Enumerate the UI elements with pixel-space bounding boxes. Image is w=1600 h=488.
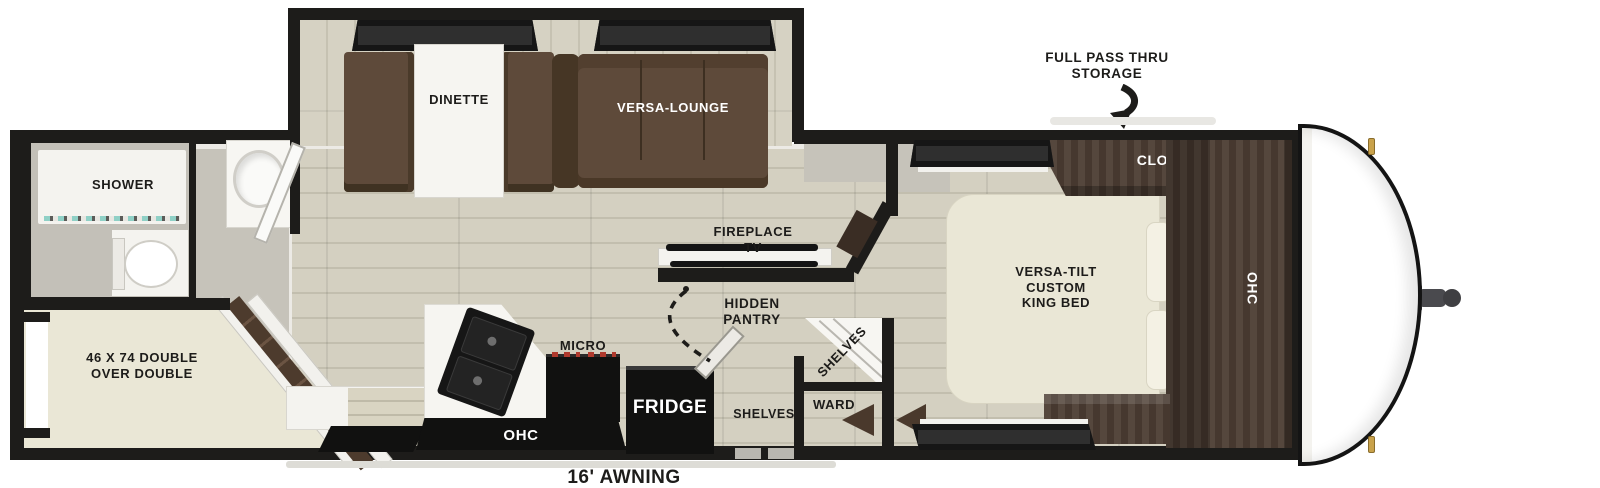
bedroom-wall-upper xyxy=(886,132,898,216)
microwave-range xyxy=(546,354,620,422)
bunk-window-frame-bottom xyxy=(24,428,50,438)
shower-label: SHOWER xyxy=(50,177,196,193)
entertainment-wall xyxy=(658,268,854,282)
kitchen-drawers xyxy=(348,388,424,428)
fireplace-label-line2: TV xyxy=(700,240,806,256)
bunk-window-frame-top xyxy=(24,312,50,322)
bedroom-ohc-label: OHC xyxy=(1244,270,1261,306)
versa-lounge xyxy=(578,54,768,188)
awning-label: 16' AWNING xyxy=(539,467,709,488)
king-bed-label-line2: CUSTOM xyxy=(966,280,1146,296)
dinette-table xyxy=(414,44,504,198)
front-cap-latch-bottom xyxy=(1368,436,1375,453)
bottom-wall-vent-1 xyxy=(735,448,761,459)
entry-door-step xyxy=(318,426,426,452)
pass-thru-storage-callout: FULL PASS THRU STORAGE xyxy=(1027,50,1187,82)
ward-label: WARD xyxy=(799,397,869,413)
bedroom-window-top xyxy=(910,140,1054,167)
pass-thru-storage-line2: STORAGE xyxy=(1027,66,1187,82)
pass-thru-storage-line1: FULL PASS THRU xyxy=(1027,50,1187,66)
slide-out-top-wall xyxy=(288,8,804,20)
rv-floorplan: FULL PASS THRU STORAGE DINETTE VERSA-LOU… xyxy=(0,0,1600,488)
king-bed-label-line1: VERSA-TILT xyxy=(966,264,1146,280)
hall-wall-3 xyxy=(882,318,894,460)
lounge-armrest xyxy=(552,54,580,188)
pass-thru-storage-door xyxy=(1050,117,1216,125)
front-cap-latch-top xyxy=(1368,138,1375,155)
bunk-bed-label: 46 X 74 DOUBLE OVER DOUBLE xyxy=(52,350,232,381)
king-bed-label-line3: KING BED xyxy=(966,295,1146,311)
bedroom-window-bottom xyxy=(912,424,1096,450)
range-burner-knobs-right xyxy=(588,352,616,357)
fireplace-tv-label: FIREPLACE TV xyxy=(700,224,806,255)
bedroom-window-top-sill xyxy=(918,167,1048,172)
dinette-label: DINETTE xyxy=(414,92,504,108)
dinette-bench-right xyxy=(502,52,554,192)
slide-window-right xyxy=(594,20,776,51)
bunk-top-wall xyxy=(24,298,230,310)
fireplace-label-line1: FIREPLACE xyxy=(700,224,806,240)
pantry-upper-lining xyxy=(804,144,886,182)
kitchen-ohc-label: OHC xyxy=(416,427,626,445)
range-burner-knobs-left xyxy=(552,352,580,357)
pantry-door-swing-icon xyxy=(650,283,728,371)
king-bed-label: VERSA-TILT CUSTOM KING BED xyxy=(966,264,1146,311)
front-cap xyxy=(1298,124,1422,466)
hall-wall-2 xyxy=(804,382,892,391)
bunk-bed-label-line2: OVER DOUBLE xyxy=(52,366,232,382)
slide-out-right-wall xyxy=(792,8,804,142)
shower-door-glass xyxy=(44,216,180,221)
toilet-bowl xyxy=(124,240,178,288)
bunk-window xyxy=(26,322,48,428)
bottom-wall-vent-2 xyxy=(768,448,794,459)
slide-out-left-wall xyxy=(288,8,300,142)
bedroom-window-bottom-sill xyxy=(920,419,1088,424)
bedroom-ohc-cabinet xyxy=(1166,140,1292,448)
dinette-bench-left xyxy=(344,52,414,192)
fireplace-insert xyxy=(670,261,818,267)
bunk-bed-label-line1: 46 X 74 DOUBLE xyxy=(52,350,232,366)
versa-lounge-label: VERSA-LOUNGE xyxy=(578,100,768,116)
fridge-label: FRIDGE xyxy=(626,397,714,420)
